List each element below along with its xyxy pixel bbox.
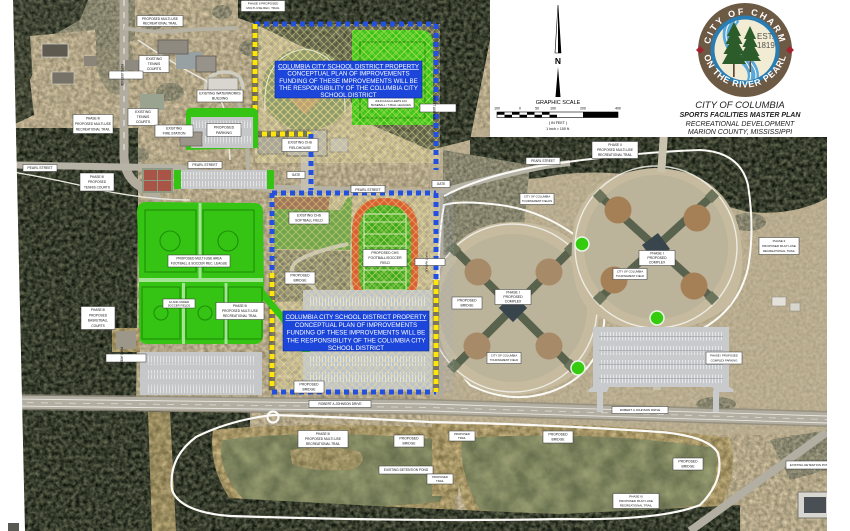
svg-text:TENNIS: TENNIS — [137, 115, 150, 119]
svg-text:THE RESPONSIBILITY OF THE COLU: THE RESPONSIBILITY OF THE COLUMBIA CITY — [279, 85, 418, 92]
svg-text:PEARL STREET: PEARL STREET — [27, 166, 52, 170]
svg-text:200: 200 — [580, 107, 586, 111]
svg-text:PROPOSED MULTI-USE: PROPOSED MULTI-USE — [222, 309, 258, 313]
svg-text:SOFTBALL FIELD: SOFTBALL FIELD — [295, 219, 323, 223]
svg-text:PARK AVENUE: PARK AVENUE — [120, 64, 124, 86]
svg-text:TENNIS COURTS: TENNIS COURTS — [84, 185, 110, 189]
svg-text:TENNIS: TENNIS — [148, 62, 161, 66]
svg-text:PHASE III: PHASE III — [91, 308, 105, 312]
svg-text:PHASE I: PHASE I — [650, 252, 663, 256]
svg-text:RECREATIONAL TRAIL: RECREATIONAL TRAIL — [598, 153, 633, 157]
svg-text:GRAPHIC SCALE: GRAPHIC SCALE — [536, 100, 581, 106]
svg-text:BRIDGE: BRIDGE — [303, 388, 317, 392]
svg-text:PROPOSED: PROPOSED — [457, 299, 477, 303]
svg-text:1 inch = 100 ft.: 1 inch = 100 ft. — [546, 127, 570, 131]
svg-text:RECREATIONAL DEVELOPMENT: RECREATIONAL DEVELOPMENT — [686, 121, 795, 128]
svg-text:FUNDING OF THESE IMPROVEMENTS: FUNDING OF THESE IMPROVEMENTS WILL BE — [287, 330, 426, 337]
svg-text:ROBERT A JOHNSON DRIVE: ROBERT A JOHNSON DRIVE — [620, 408, 660, 412]
svg-text:PHASE III: PHASE III — [629, 495, 643, 499]
svg-text:EXISTING CHS: EXISTING CHS — [297, 214, 322, 218]
svg-text:TOURNAMENT FIELDS: TOURNAMENT FIELDS — [522, 199, 552, 203]
svg-text:PROPOSED MULTI-USE: PROPOSED MULTI-USE — [619, 499, 653, 503]
svg-text:BRIDGE: BRIDGE — [403, 442, 417, 446]
svg-text:TOURNAMENT FIELD: TOURNAMENT FIELD — [616, 274, 644, 278]
svg-text:PROPOSED MULTI-USE: PROPOSED MULTI-USE — [75, 122, 111, 126]
svg-text:COURTS: COURTS — [91, 324, 104, 328]
svg-text:COLUMBIA CITY SCHOOL DISTRICT: COLUMBIA CITY SCHOOL DISTRICT PROPERTY — [285, 314, 426, 321]
svg-text:PROPOSED: PROPOSED — [399, 437, 419, 441]
svg-text:PROPOSED CHS: PROPOSED CHS — [371, 251, 399, 255]
svg-text:RECREATIONAL TRAIL: RECREATIONAL TRAIL — [306, 442, 341, 446]
svg-text:PROPOSED: PROPOSED — [678, 460, 698, 464]
svg-text:50: 50 — [535, 107, 539, 111]
svg-text:GATE: GATE — [437, 182, 445, 186]
svg-text:EST.: EST. — [757, 32, 774, 41]
svg-text:CITY OF COLUMBIA: CITY OF COLUMBIA — [491, 354, 518, 358]
svg-text:CONCEPTUAL PLAN OF IMPROVEMENT: CONCEPTUAL PLAN OF IMPROVEMENTS — [287, 71, 409, 78]
svg-text:PROPOSED: PROPOSED — [548, 433, 568, 437]
svg-text:TRAIL: TRAIL — [436, 479, 444, 483]
svg-text:COMPLEX: COMPLEX — [649, 260, 666, 264]
svg-text:RECREATIONAL TRAIL: RECREATIONAL TRAIL — [763, 249, 796, 253]
svg-text:CITY OF COLUMBIA: CITY OF COLUMBIA — [617, 270, 644, 274]
svg-text:EXISTING CHS: EXISTING CHS — [288, 140, 313, 144]
svg-text:THE RESPONSIBILITY OF THE COLU: THE RESPONSIBILITY OF THE COLUMBIA CITY — [287, 337, 426, 344]
svg-text:COMPLEX PARKING: COMPLEX PARKING — [711, 359, 738, 363]
svg-text:PARKING: PARKING — [216, 131, 232, 135]
svg-text:COMPLEX: COMPLEX — [505, 299, 522, 303]
svg-text:CONCEPTUAL PLAN OF IMPROVEMENT: CONCEPTUAL PLAN OF IMPROVEMENTS — [295, 322, 417, 329]
svg-text:EXISTING: EXISTING — [146, 57, 162, 61]
svg-text:RECREATIONAL TRAIL: RECREATIONAL TRAIL — [143, 21, 178, 25]
svg-text:PROPOSED MULTI-USE: PROPOSED MULTI-USE — [762, 244, 796, 248]
svg-text:PROPOSED: PROPOSED — [647, 256, 667, 260]
svg-text:PROPOSED: PROPOSED — [503, 295, 523, 299]
svg-text:1819: 1819 — [757, 41, 775, 50]
svg-text:EXISTING: EXISTING — [135, 110, 151, 114]
svg-text:PROPOSED: PROPOSED — [299, 383, 319, 387]
svg-text:FOOTBALL/SOCCER: FOOTBALL/SOCCER — [368, 256, 402, 260]
svg-text:COURTS: COURTS — [147, 67, 162, 71]
svg-text:SOCCER FIELDS: SOCCER FIELDS — [168, 304, 191, 308]
svg-text:RECREATIONAL TRAIL: RECREATIONAL TRAIL — [76, 128, 111, 132]
svg-text:PEARL STREET: PEARL STREET — [192, 163, 217, 167]
svg-text:PHASE III: PHASE III — [316, 432, 330, 436]
svg-text:CITY OF COLUMBIA: CITY OF COLUMBIA — [695, 100, 784, 111]
svg-text:FIRE STATION: FIRE STATION — [163, 132, 186, 136]
svg-text:RECREATIONAL TRAIL: RECREATIONAL TRAIL — [620, 503, 653, 507]
svg-text:MULTI-USE REC. TRAIL: MULTI-USE REC. TRAIL — [246, 6, 280, 10]
svg-text:ROBERT A JOHNSON DRIVE: ROBERT A JOHNSON DRIVE — [319, 402, 362, 406]
svg-text:PHASE II: PHASE II — [773, 239, 786, 243]
svg-text:PROPOSED MULTI-USE: PROPOSED MULTI-USE — [305, 437, 341, 441]
svg-text:( IN FEET ): ( IN FEET ) — [549, 121, 567, 125]
svg-text:PEARL STREET: PEARL STREET — [531, 159, 555, 163]
svg-text:PROPOSED MULTI-USE: PROPOSED MULTI-USE — [597, 148, 633, 152]
svg-text:PRATT AVENUE: PRATT AVENUE — [425, 252, 429, 273]
svg-text:EXISTING DETENTION POND: EXISTING DETENTION POND — [384, 468, 429, 472]
svg-text:COLUMBIA CITY SCHOOL DISTRICT: COLUMBIA CITY SCHOOL DISTRICT PROPERTY — [278, 63, 419, 70]
svg-text:BRIDGE: BRIDGE — [682, 465, 696, 469]
svg-text:BUILDING: BUILDING — [212, 97, 228, 101]
svg-text:PHASE II PROPOSED: PHASE II PROPOSED — [248, 2, 279, 6]
svg-text:RECREATIONAL TRAIL: RECREATIONAL TRAIL — [223, 314, 258, 318]
svg-text:SCHOOL DISTRICT: SCHOOL DISTRICT — [328, 345, 384, 352]
svg-text:BASKETBALL: BASKETBALL — [88, 319, 109, 323]
svg-text:100: 100 — [494, 107, 500, 111]
svg-text:CITY OF COLUMBIA: CITY OF COLUMBIA — [524, 195, 551, 199]
svg-text:SPORTS FACILITIES MASTER PLAN: SPORTS FACILITIES MASTER PLAN — [680, 112, 802, 119]
svg-text:PARK AVENUE: PARK AVENUE — [119, 347, 123, 369]
svg-text:BASEBALL / T-BALL LEAGUES: BASEBALL / T-BALL LEAGUES — [371, 103, 411, 107]
svg-text:0: 0 — [519, 107, 521, 111]
svg-text:PHASE III: PHASE III — [86, 117, 100, 121]
svg-text:FUNDING OF THESE IMPROVEMENTS: FUNDING OF THESE IMPROVEMENTS WILL BE — [279, 78, 418, 85]
svg-text:BRIDGE: BRIDGE — [552, 438, 566, 442]
svg-text:PROPOSED: PROPOSED — [214, 125, 235, 129]
svg-text:MARION COUNTY, MISSISSIPPI: MARION COUNTY, MISSISSIPPI — [688, 129, 792, 136]
svg-text:TOURNAMENT FIELD: TOURNAMENT FIELD — [490, 358, 518, 362]
svg-text:PROPOSED: PROPOSED — [89, 313, 108, 317]
svg-text:PHASE I PROPOSED: PHASE I PROPOSED — [710, 354, 738, 358]
svg-text:PROPOSED: PROPOSED — [88, 180, 107, 184]
svg-text:PROPOSED: PROPOSED — [290, 274, 310, 278]
svg-text:EXISTING: EXISTING — [166, 127, 182, 131]
svg-text:FOOTBALL & SOCCER REC. LEAGUE: FOOTBALL & SOCCER REC. LEAGUE — [171, 262, 227, 266]
svg-text:BRIDGE: BRIDGE — [461, 304, 475, 308]
svg-text:COURTS: COURTS — [136, 120, 151, 124]
svg-text:PHASE III: PHASE III — [90, 175, 104, 179]
svg-text:GATE: GATE — [292, 173, 300, 177]
svg-text:N: N — [555, 56, 561, 66]
svg-text:PHASE III: PHASE III — [233, 304, 247, 308]
svg-text:100: 100 — [550, 107, 556, 111]
svg-text:PEARL STREET: PEARL STREET — [355, 188, 380, 192]
svg-text:FIELDHOUSE: FIELDHOUSE — [289, 146, 311, 150]
svg-text:FIELD: FIELD — [380, 261, 390, 265]
svg-text:PHASE II: PHASE II — [608, 143, 622, 147]
svg-text:400: 400 — [615, 107, 621, 111]
svg-text:EXISTING DETENTION POND: EXISTING DETENTION POND — [790, 463, 830, 467]
svg-text:PROPOSED MULTI-USE AREA: PROPOSED MULTI-USE AREA — [176, 257, 222, 261]
svg-text:SCHOOL DISTRICT: SCHOOL DISTRICT — [320, 92, 376, 99]
svg-text:EXISTING WATERWORKS: EXISTING WATERWORKS — [199, 92, 241, 96]
svg-text:PHASE I: PHASE I — [506, 291, 519, 295]
svg-text:TRAIL: TRAIL — [458, 436, 466, 440]
svg-text:BRIDGE: BRIDGE — [294, 279, 308, 283]
svg-text:PRATT AVENUE: PRATT AVENUE — [432, 96, 436, 120]
svg-text:PROPOSED MULTI-USE: PROPOSED MULTI-USE — [142, 17, 178, 21]
